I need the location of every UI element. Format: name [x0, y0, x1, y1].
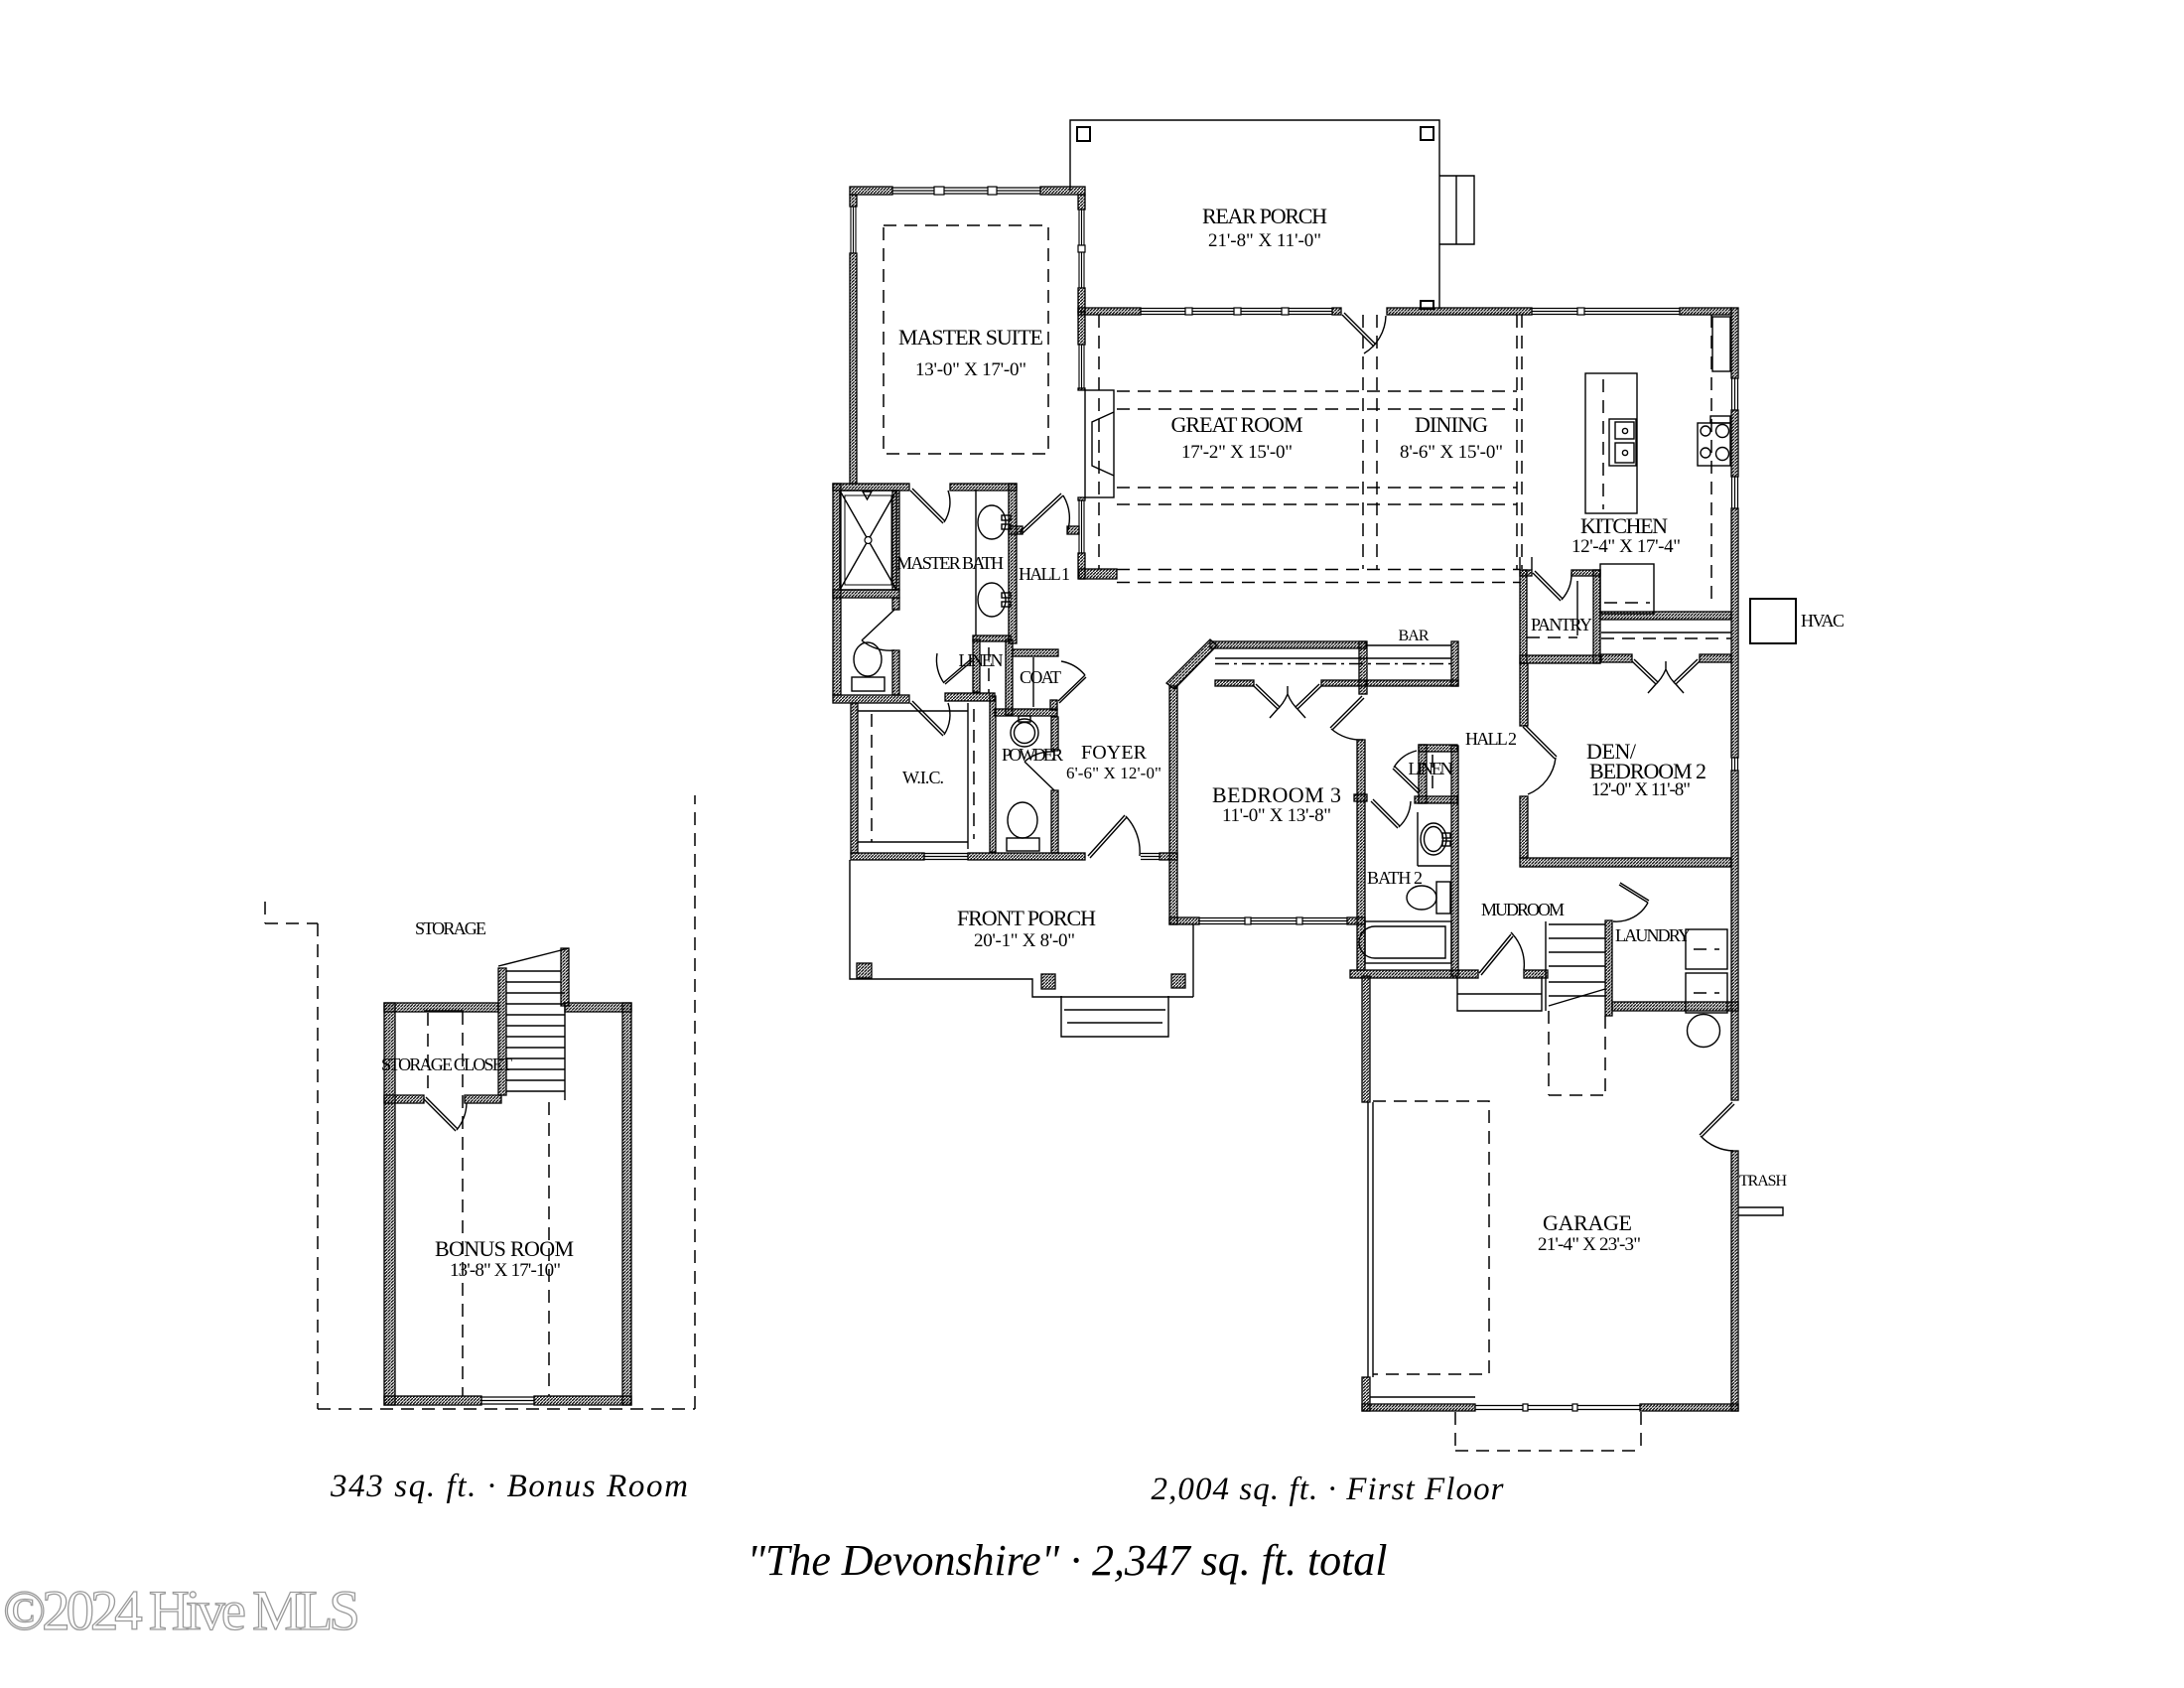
- svg-text:BATH 2: BATH 2: [1367, 868, 1423, 888]
- svg-text:STORAGE CLOSET: STORAGE CLOSET: [381, 1055, 512, 1074]
- svg-text:6'-6" X 12'-0": 6'-6" X 12'-0": [1066, 764, 1161, 782]
- svg-text:13'-0" X 17'-0": 13'-0" X 17'-0": [915, 359, 1026, 380]
- svg-text:FOYER: FOYER: [1081, 742, 1148, 764]
- svg-text:12'-0" X 11'-8": 12'-0" X 11'-8": [1591, 779, 1691, 800]
- svg-text:BEDROOM 3: BEDROOM 3: [1212, 782, 1341, 807]
- svg-text:DINING: DINING: [1415, 412, 1488, 437]
- svg-text:343 sq. ft. · Bonus Room: 343 sq. ft. · Bonus Room: [330, 1469, 688, 1504]
- svg-text:STORAGE: STORAGE: [415, 918, 486, 938]
- svg-text:HVAC: HVAC: [1801, 611, 1844, 631]
- svg-text:KITCHEN: KITCHEN: [1580, 513, 1668, 538]
- svg-text:HALL 1: HALL 1: [1019, 564, 1070, 584]
- svg-text:TRASH: TRASH: [1739, 1173, 1787, 1190]
- svg-text:HALL 2: HALL 2: [1465, 729, 1517, 749]
- svg-text:21'-8" X 11'-0": 21'-8" X 11'-0": [1208, 230, 1321, 251]
- svg-text:8'-6" X 15'-0": 8'-6" X 15'-0": [1400, 442, 1503, 463]
- svg-text:W.I.C.: W.I.C.: [902, 768, 944, 787]
- svg-text:20'-1" X 8'-0": 20'-1" X 8'-0": [974, 930, 1075, 951]
- svg-text:17'-2" X 15'-0": 17'-2" X 15'-0": [1181, 442, 1293, 463]
- svg-text:LAUNDRY: LAUNDRY: [1615, 925, 1691, 945]
- svg-text:13'-8" X 17'-10": 13'-8" X 17'-10": [450, 1260, 561, 1281]
- svg-text:12'-4" X 17'-4": 12'-4" X 17'-4": [1571, 536, 1681, 557]
- svg-text:21'-4" X 23'-3": 21'-4" X 23'-3": [1538, 1234, 1641, 1255]
- svg-text:LINEN: LINEN: [1409, 759, 1453, 778]
- svg-text:BAR: BAR: [1399, 628, 1430, 644]
- svg-text:GARAGE: GARAGE: [1543, 1210, 1632, 1235]
- svg-text:FRONT PORCH: FRONT PORCH: [957, 906, 1096, 930]
- svg-text:COAT: COAT: [1020, 667, 1061, 687]
- svg-text:BONUS ROOM: BONUS ROOM: [435, 1236, 574, 1261]
- svg-text:MASTER SUITE: MASTER SUITE: [898, 325, 1043, 350]
- svg-text:MUDROOM: MUDROOM: [1481, 900, 1565, 919]
- svg-text:POWDER: POWDER: [1002, 745, 1063, 765]
- svg-text:©2024 Hive MLS: ©2024 Hive MLS: [3, 1580, 360, 1642]
- svg-text:"The Devonshire" · 2,347 sq.: "The Devonshire" · 2,347 sq. ft. total: [748, 1536, 1388, 1585]
- svg-text:LINEN: LINEN: [959, 650, 1004, 670]
- svg-text:2,004 sq. ft. · First Floor: 2,004 sq. ft. · First Floor: [1152, 1472, 1504, 1507]
- svg-text:REAR PORCH: REAR PORCH: [1202, 204, 1327, 228]
- svg-text:11'-0" X 13'-8": 11'-0" X 13'-8": [1222, 805, 1331, 826]
- svg-text:PANTRY: PANTRY: [1531, 615, 1592, 634]
- svg-text:GREAT ROOM: GREAT ROOM: [1171, 412, 1303, 437]
- svg-text:MASTER BATH: MASTER BATH: [896, 553, 1004, 573]
